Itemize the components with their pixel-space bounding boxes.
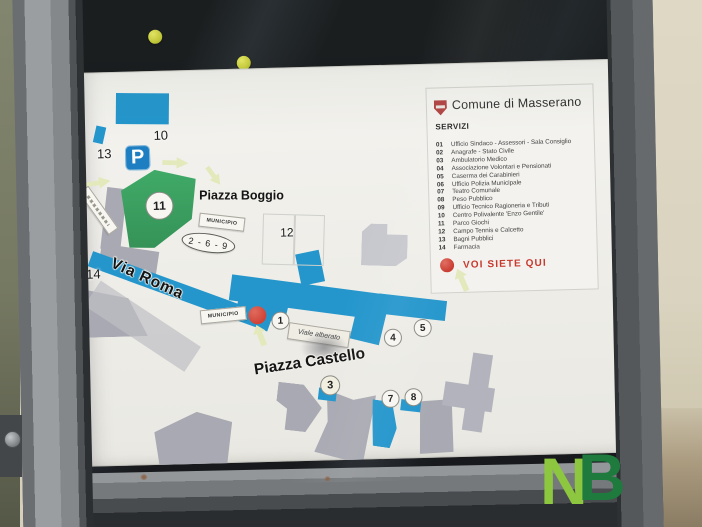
legend-title: Comune di Masserano [452, 95, 582, 112]
marker-11-label: 11 [153, 199, 166, 213]
marker-1: 1 [271, 311, 289, 329]
marker-5: 5 [413, 319, 431, 337]
legend-section-title: SERVIZI [435, 122, 469, 132]
municipio-label: MUNICIPIO [206, 217, 237, 226]
marker-7-label: 7 [388, 393, 394, 404]
marker-13: 13 [97, 146, 112, 161]
bolt-icon [4, 431, 21, 448]
municipio-ribbon: MUNICIPIO [198, 213, 245, 232]
group-269-oval: 2 - 6 - 9 [180, 230, 236, 257]
legend-items-list: 01Ufficio Sindaco - Assessori - Sala Con… [436, 138, 591, 253]
marker-3: 3 [320, 375, 341, 396]
watermark-letter-b: B [578, 444, 626, 510]
municipio-label: MUNICIPIO [208, 311, 239, 320]
marker-1-label: 1 [278, 315, 284, 326]
marker-8-label: 8 [411, 392, 417, 403]
marker-3-label: 3 [327, 379, 333, 391]
parking-letter: P [131, 146, 145, 169]
crest-band [436, 105, 445, 108]
legend-item-label: Farmacia [454, 243, 480, 252]
frame-left-post [12, 0, 94, 527]
tennis-court-outline [262, 213, 325, 266]
town-map-sheet: P MUNICIPIO MUNICIPIO Viale alberato 2 -… [81, 58, 647, 466]
marker-10: 10 [153, 128, 168, 143]
masserano-crest-icon [434, 99, 447, 115]
legend-you-are-here-label: VOI SIETE QUI [463, 258, 547, 271]
parking-icon: P [125, 145, 151, 171]
direction-arrow-icon [162, 156, 188, 170]
marker-4-label: 4 [390, 332, 396, 343]
building-shape [361, 223, 408, 266]
nb-watermark: N B [540, 444, 650, 524]
legend-you-are-here-dot [440, 258, 454, 272]
marker-5-label: 5 [420, 322, 426, 333]
road-branch [377, 293, 447, 321]
direction-arrow-icon [202, 163, 226, 188]
hinge-plate [0, 415, 22, 477]
marker-7: 7 [381, 390, 399, 408]
building-13-shape [93, 125, 106, 144]
group-269-label: 2 - 6 - 9 [188, 235, 229, 251]
legend-panel: Comune di Masserano SERVIZI 01Ufficio Si… [425, 83, 598, 293]
building-shape [154, 411, 233, 467]
building-10-shape [116, 93, 169, 124]
building-shape [273, 382, 324, 434]
piazza-boggio-label: Piazza Boggio [199, 189, 284, 203]
rust-spot [324, 476, 330, 481]
building-shape [313, 389, 376, 465]
photo-scene: P MUNICIPIO MUNICIPIO Viale alberato 2 -… [0, 0, 702, 527]
marker-12: 12 [280, 225, 294, 239]
legend-item-number: 14 [439, 244, 454, 252]
rust-spot [140, 474, 147, 480]
court-middle-line [293, 215, 296, 264]
